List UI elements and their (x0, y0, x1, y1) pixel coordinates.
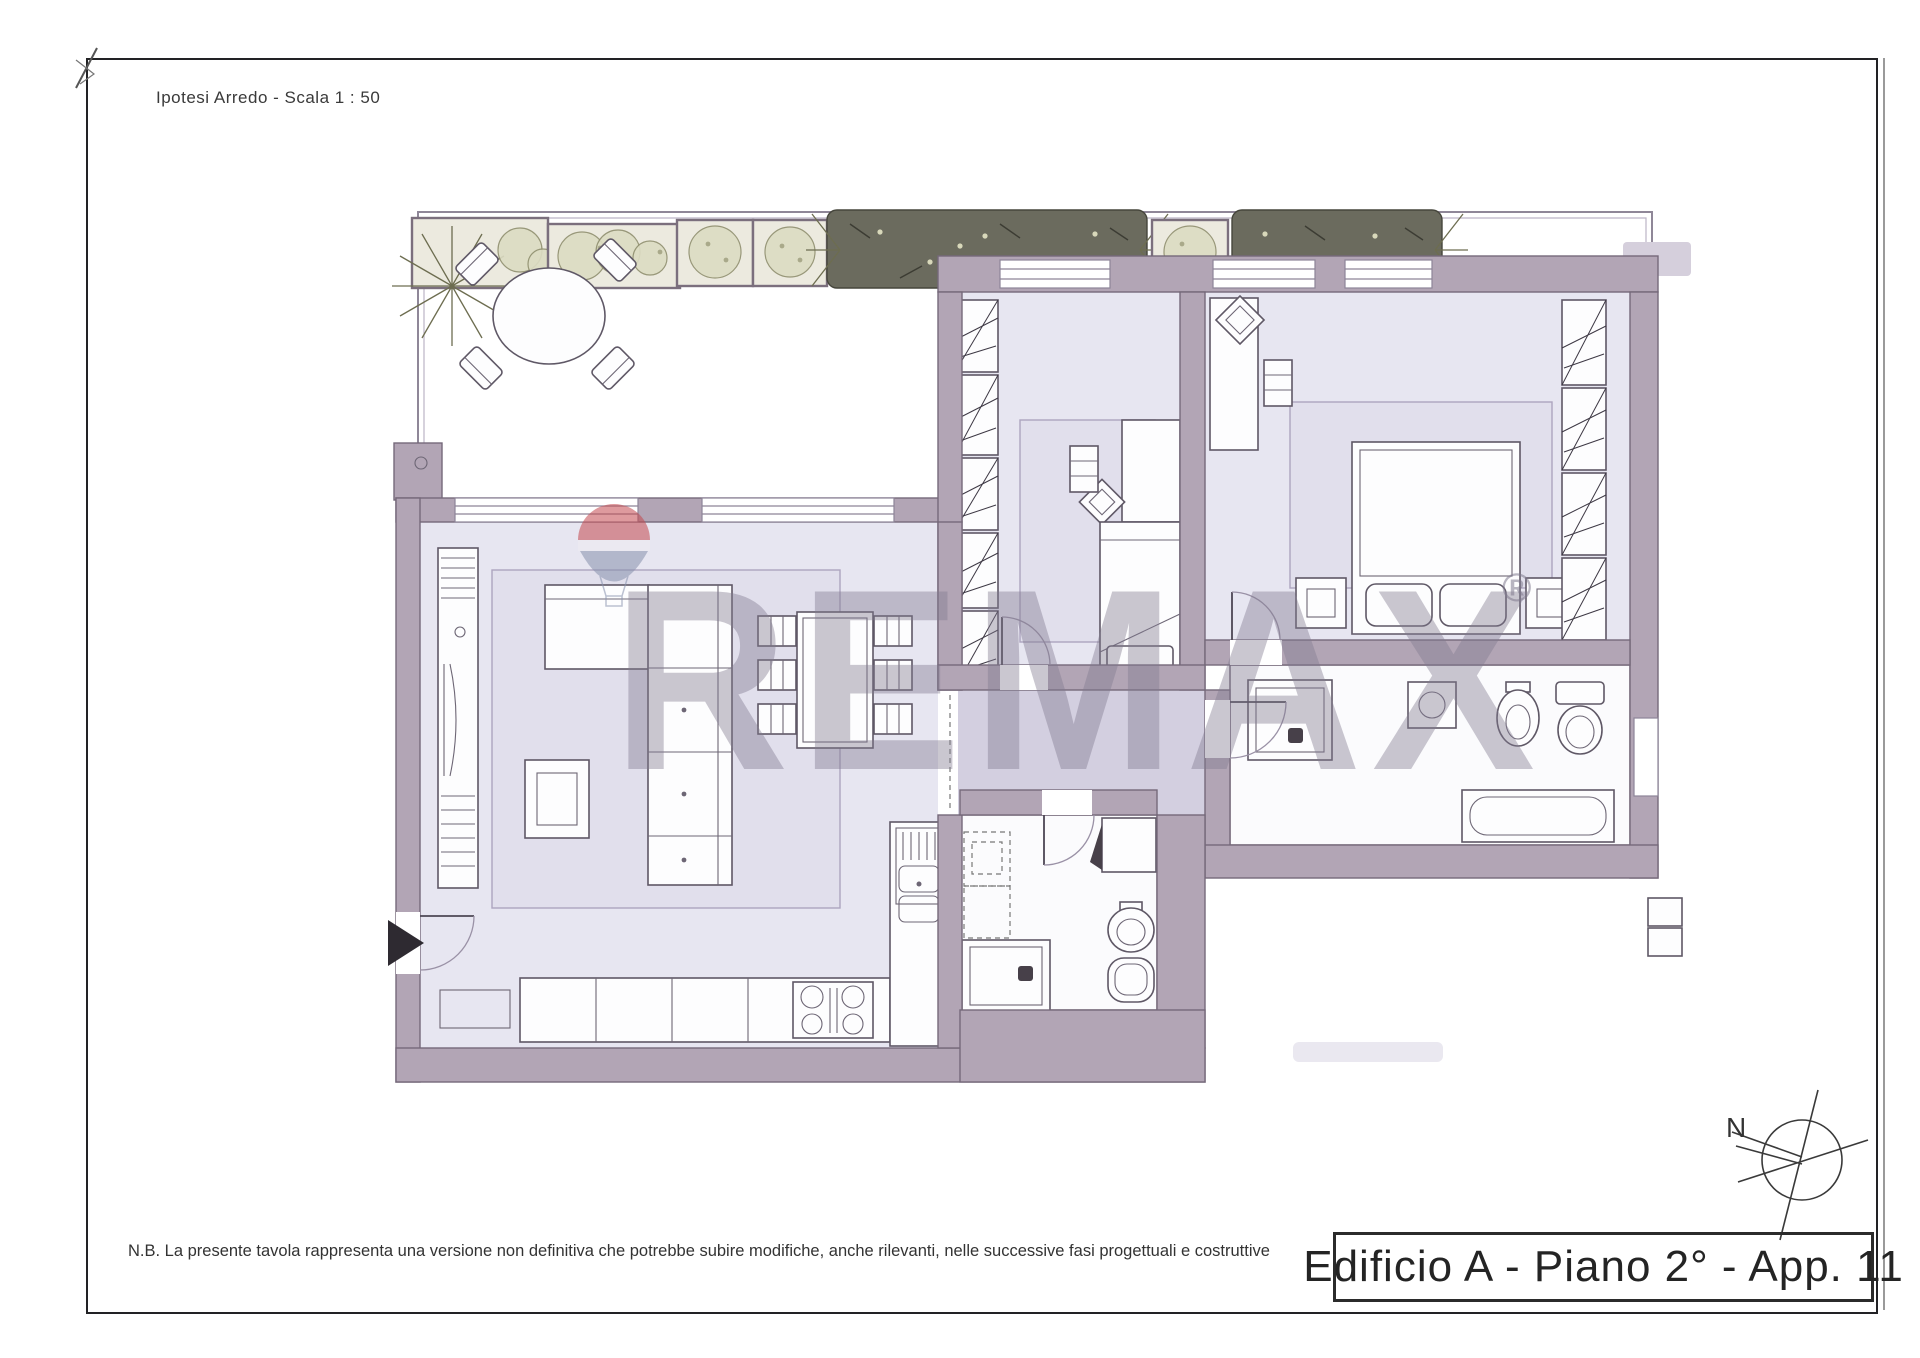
dining-table-group (758, 612, 912, 748)
bathtub-icon (1462, 790, 1614, 842)
title-block-text: Edificio A - Piano 2° - App. 11 (1303, 1242, 1904, 1292)
compass-north-label: N (1726, 1112, 1746, 1144)
compass-rose (1732, 1090, 1868, 1240)
planter-box-shrubs-2 (677, 220, 753, 286)
dining-chair (758, 616, 796, 646)
registered-trademark-icon: ® (1502, 566, 1531, 611)
disclaimer-note: N.B. La presente tavola rappresenta una … (128, 1242, 1288, 1261)
dining-chair (758, 660, 796, 690)
wall-bedroom1-master (1180, 292, 1205, 690)
bedroom-1-side-chair (1070, 446, 1098, 492)
coffee-table (525, 760, 589, 838)
shower-icon (962, 940, 1050, 1012)
wall-living-lower (938, 815, 962, 1048)
wall-left (396, 498, 420, 1082)
terrace-chair (458, 345, 503, 390)
window (702, 498, 894, 522)
floor-plan-svg (0, 0, 1920, 1358)
dining-chair (874, 616, 912, 646)
toilet-icon (1556, 682, 1604, 754)
wall-bottom-right (1205, 845, 1658, 878)
nightstand (1296, 578, 1346, 628)
wall-bath1-bottom (960, 1010, 1205, 1082)
window (1000, 260, 1110, 288)
scan-smudge (1293, 1042, 1443, 1062)
terrace-chair (590, 345, 635, 390)
tv-unit (438, 548, 478, 888)
single-bed (1100, 522, 1180, 688)
shower-icon (1248, 680, 1332, 760)
terrace-pillar (394, 443, 442, 500)
planter-box-shrubs-3 (753, 220, 827, 286)
window (1213, 260, 1315, 288)
bedroom-1-desk (1122, 420, 1180, 522)
window (1345, 260, 1432, 288)
title-block: Edificio A - Piano 2° - App. 11 (1333, 1232, 1874, 1302)
dining-chair (874, 704, 912, 734)
dining-chair (874, 660, 912, 690)
dining-chair (758, 704, 796, 734)
hob-icon (793, 982, 873, 1038)
wall-bedroom1-bottom (938, 665, 1205, 690)
exterior-unit (1648, 898, 1682, 956)
right-wall-niche (1634, 718, 1658, 796)
master-side-chair (1264, 360, 1292, 406)
scanned-floor-plan-page: Ipotesi Arredo - Scala 1 : 50 (0, 0, 1920, 1358)
vanity-sink-icon (1408, 682, 1456, 728)
double-bed (1352, 442, 1520, 634)
corner-fold-mark (76, 48, 97, 88)
master-wardrobe (1562, 300, 1606, 640)
toilet-icon (1108, 958, 1154, 1002)
